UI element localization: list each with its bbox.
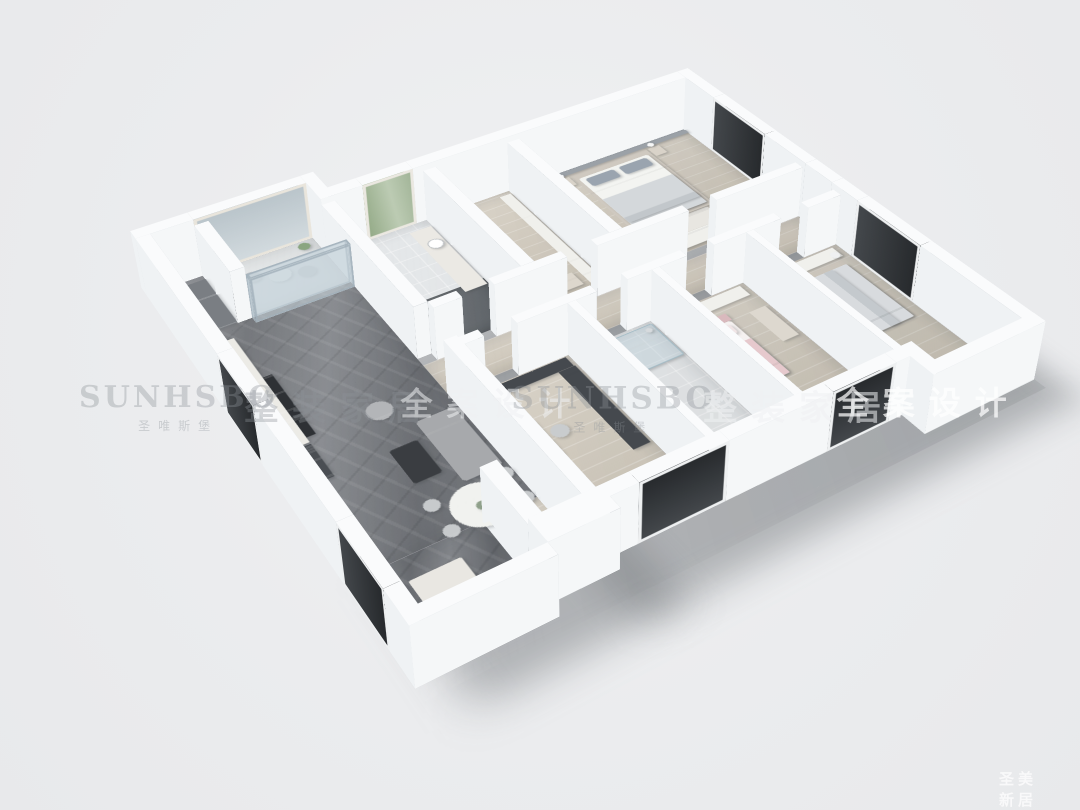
corner-watermark: 圣美新居 [999, 768, 1053, 810]
isometric-scene [0, 0, 1080, 810]
floorplan-render-canvas: SUNHSBO圣唯斯堡整装家居全案设计SUNHSBO圣唯斯堡整装家居全案设计 圣… [0, 0, 1080, 810]
apartment-3d-floorplan [141, 107, 1046, 703]
